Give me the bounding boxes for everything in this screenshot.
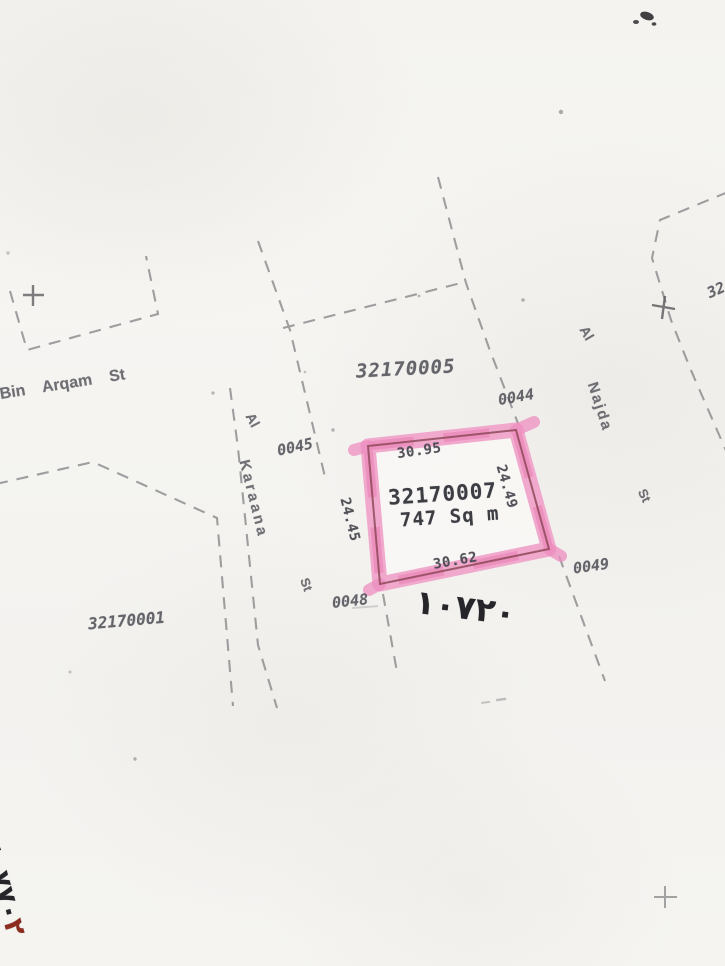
boundary-line-karaana-west xyxy=(230,388,277,708)
cadastral-map-scan: Bin Arqam St Al Karaana St Al Najda St 3… xyxy=(0,0,725,966)
boundary-line-najda-east xyxy=(652,192,725,453)
scanned-map-layer: Bin Arqam St Al Karaana St Al Najda St 3… xyxy=(0,0,725,966)
boundary-line-block5-north xyxy=(283,282,465,328)
survey-cross-topleft xyxy=(23,285,44,306)
survey-cross-right xyxy=(652,296,675,319)
boundary-line-binarqam-south xyxy=(0,462,233,706)
ink-blot xyxy=(633,10,656,26)
boundary-line-below-parcel xyxy=(383,594,397,672)
survey-cross-bottomright xyxy=(654,886,677,908)
map-linework xyxy=(0,0,725,966)
lot-number-0048: 0048 xyxy=(331,590,369,612)
